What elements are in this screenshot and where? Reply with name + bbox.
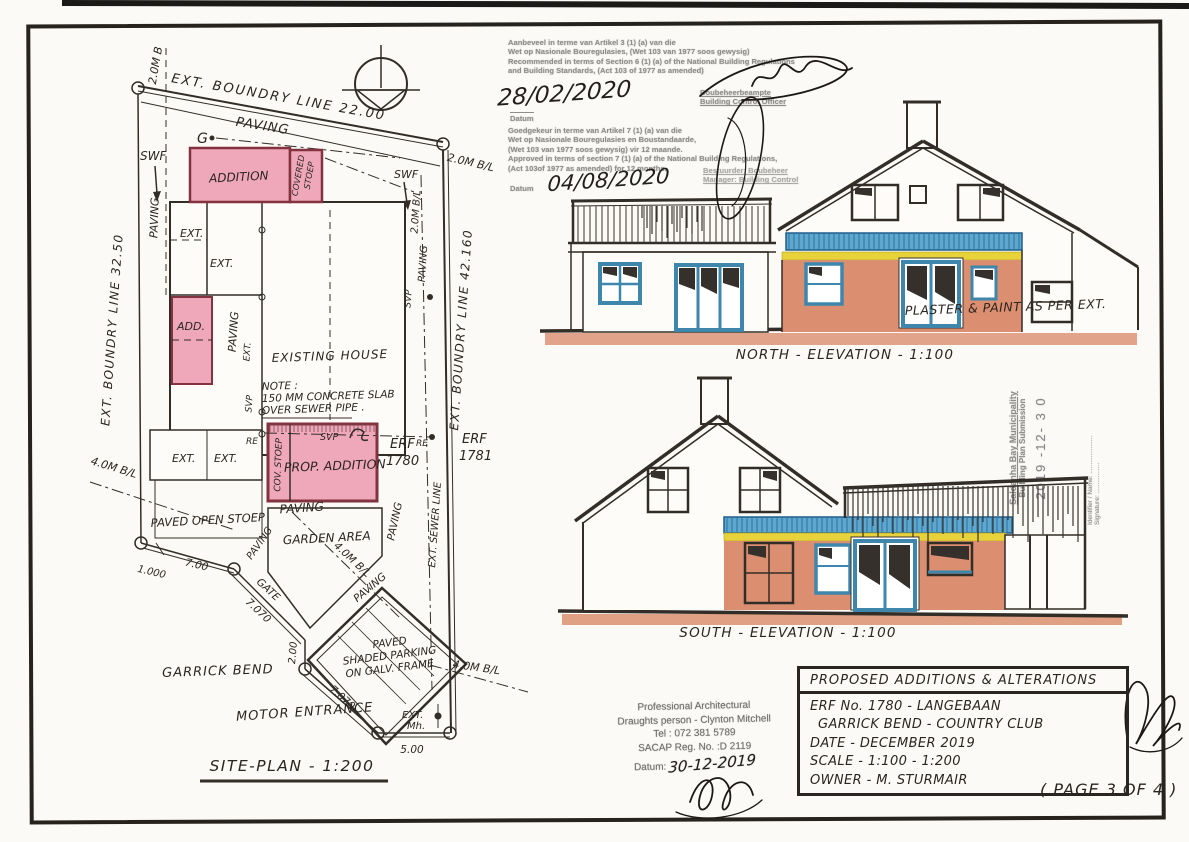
page-number-note: ( PAGE 3 OF 4 ) [1040, 780, 1177, 799]
site-plan: EXT. BOUNDRY LINE 22.00 EXT. BOUNDRY LIN… [89, 45, 528, 781]
date-line: DATE - DECEMBER 2019 [810, 735, 1116, 753]
railing-bars-varied [642, 206, 702, 238]
building-line-label: 4.0M B/L [452, 658, 501, 678]
ext-room-label: EXT. [210, 257, 233, 270]
add-label: ADD. [176, 320, 205, 333]
north-elevation-label: NORTH - ELEVATION - 1:100 [736, 347, 954, 363]
building-line-label: 2.0M B/L [410, 190, 424, 234]
erf-line: ERF No. 1780 - LANGEBAAN [810, 698, 1116, 716]
swf-marker: SWF [140, 149, 167, 163]
side-wall [1005, 535, 1085, 609]
svp-marker: SVP [244, 394, 255, 413]
south-elevation: SOUTH - ELEVATION - 1:100 [558, 378, 1128, 641]
re-marker: RE [246, 437, 258, 447]
building-line-label: 4.0M B/L [331, 540, 373, 580]
manhole-label: EXT. [402, 710, 423, 721]
south-elevation-label: SOUTH - ELEVATION - 1:100 [679, 625, 896, 641]
window [972, 267, 996, 299]
date-value: 04/08/2020 [547, 164, 671, 196]
rail-band-bars [789, 234, 1019, 249]
north-arrow-icon [342, 45, 420, 110]
architect-signature-flourish [676, 800, 762, 818]
location-line: GARRICK BEND - COUNTRY CLUB [810, 716, 1116, 734]
slab-hatch [270, 424, 374, 432]
title-block: PROPOSED ADDITIONS & ALTERATIONS ERF No.… [797, 666, 1129, 796]
re-marker: RE [416, 439, 428, 449]
north-elevation: PLASTER & PAINT AS PER EXT. NORTH - ELEV… [540, 102, 1138, 363]
paving-label: PAVING [245, 525, 275, 562]
folding-door [676, 265, 742, 330]
scanned-plan-page: Aanbeveel in terme van Artikel 3 (1) (a)… [0, 0, 1189, 842]
signature-initials [752, 61, 852, 86]
site-plan-title: SITE-PLAN - 1:200 [209, 757, 374, 775]
paving-label: PAVING [417, 245, 431, 283]
ext-small-label: EXT. [242, 342, 253, 362]
ext-room-label: EXT. [214, 452, 237, 465]
erf-number: 1780 [386, 454, 419, 469]
paving-label: PAVING [385, 501, 405, 541]
erf-label: ERF [462, 432, 487, 447]
building-line-label: 4.0M B/L [89, 454, 139, 480]
dimension: 5.00 [400, 744, 424, 756]
signature-ellipse-inner [728, 118, 746, 206]
street-label: GARRICK BEND [162, 662, 274, 681]
svp-marker: SVP [320, 432, 339, 443]
scale-line: SCALE - 1:100 - 1:200 [810, 753, 1116, 771]
paved-open-stoep-label: PAVED OPEN STOEP [150, 510, 265, 530]
garden-area-label: GARDEN AREA [283, 529, 371, 548]
date-value: 28/02/2020 [497, 76, 632, 111]
drawing-title: PROPOSED ADDITIONS & ALTERATIONS [800, 669, 1126, 694]
building-line-label: 2.0M B/L [446, 151, 496, 174]
ext-room-label: EXT. [172, 452, 195, 465]
window [806, 264, 842, 304]
gate-label: GATE [254, 576, 283, 604]
owner-signature [1125, 682, 1180, 746]
signature-ellipse [708, 93, 773, 223]
erf-label: ERF [390, 437, 415, 452]
handwritten-date-2: 04/08/2020 [548, 168, 669, 193]
architect-signature [690, 778, 753, 810]
boundary-left-label: EXT. BOUNDRY LINE 32.50 [98, 233, 125, 426]
paving-label: PAVING [147, 197, 161, 238]
handwritten-date-1: 28/02/2020 [498, 80, 631, 107]
dimension: 7.00 [184, 557, 210, 574]
manhole-label: Mh. [407, 721, 425, 732]
g-marker: G [197, 131, 208, 147]
paving-label: PAVING [235, 115, 291, 138]
double-door [851, 537, 919, 610]
boundary-right-label: EXT. BOUNDRY LINE 42.160 [447, 228, 475, 431]
swf-marker: SWF [394, 168, 419, 181]
motor-entrance-label: MOTOR ENTRANCE [236, 700, 374, 725]
window [816, 545, 850, 593]
dimension: 2.00 [287, 641, 300, 664]
railing-bars [578, 206, 764, 243]
ext-room-label: EXT. [180, 227, 203, 240]
erf-number: 1781 [459, 449, 492, 464]
window [600, 264, 640, 303]
building-line-label: 2.0M B [146, 46, 165, 86]
sewer-line-label: EXT. SEWER LINE [427, 481, 444, 568]
dimension: 1.000 [136, 564, 166, 581]
